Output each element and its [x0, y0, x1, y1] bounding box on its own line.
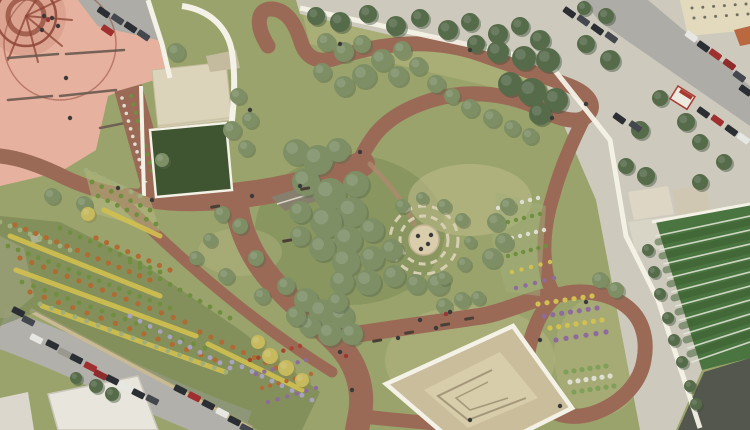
terrace-rows-green-item — [31, 284, 36, 289]
terrace-rows-sage-item — [165, 348, 170, 353]
terrace-rows-green-item — [203, 346, 208, 351]
terrace-rows-green-item — [147, 298, 152, 303]
terrace-rows-green-item — [125, 208, 130, 213]
people-accent-item — [444, 312, 448, 316]
terrace-rows-orange-item — [123, 297, 128, 302]
window-rows-item — [714, 15, 717, 18]
trees-park-item — [329, 141, 340, 152]
trees-park-item — [250, 252, 257, 259]
terrace-rows-sage-item — [154, 344, 159, 349]
aerial-park-render — [0, 0, 750, 430]
people-item — [358, 150, 362, 154]
east-terrace-green-item — [522, 216, 526, 220]
terrace-rows-orange-item — [170, 342, 175, 347]
window-rows-item — [747, 13, 750, 16]
terrace-rows-green-item — [148, 265, 153, 270]
trees-yellow-item — [297, 375, 303, 381]
trees-outside-item — [361, 7, 369, 15]
trees-outside-item — [522, 82, 535, 95]
trees-park-item — [439, 273, 445, 279]
people-item — [56, 24, 60, 28]
terrace-rows-sage-item — [38, 236, 43, 241]
terrace-rows-green-item — [105, 198, 110, 203]
east-terrace-purple-item — [552, 276, 556, 280]
terrace-rows-sage-item — [102, 176, 107, 181]
loop-bed-purple-item — [573, 334, 578, 339]
trees-park-item — [502, 200, 509, 207]
terrace-rows-green-item — [109, 189, 114, 194]
terrace-rows-sage-item — [96, 323, 101, 328]
loop-bed-yellow-item — [573, 321, 578, 326]
terrace-rows-green-item — [123, 317, 128, 322]
trees-park-item — [485, 111, 493, 119]
trees-park-item — [191, 253, 197, 259]
terrace-rows-orange-item — [93, 235, 98, 240]
terrace-rows-sage-item — [38, 302, 43, 307]
terrace-rows-green-item — [157, 302, 162, 307]
loop-bed-yellow-item — [556, 324, 561, 329]
terrace-rows-orange-item — [136, 254, 141, 259]
trees-park-item — [292, 204, 302, 214]
trees-park-item — [438, 300, 445, 307]
terrace-rows-lavender-item — [198, 350, 203, 355]
window-rows-item — [701, 6, 704, 9]
terrace-rows-lavender-item — [208, 355, 213, 360]
terrace-rows-orange-item — [54, 239, 59, 244]
trees-park-item — [293, 229, 302, 238]
terrace-rows-green-item — [16, 247, 21, 252]
terrace-rows-sage-item — [8, 224, 13, 229]
terrace-rows-sage-item — [107, 327, 112, 332]
terrace-rows-green-item — [46, 259, 51, 264]
terrace-rows-green-item — [36, 255, 41, 260]
window-rows-item — [725, 14, 728, 17]
people-item — [468, 418, 472, 422]
loop-bed-green-item — [611, 383, 616, 388]
people-item — [396, 336, 400, 340]
trees-park-item — [395, 43, 403, 51]
trees-outside-item — [532, 106, 542, 116]
ramp-plant-row-green-item — [131, 102, 135, 106]
people-accent-item — [46, 18, 50, 22]
loop-bed-green-item — [579, 388, 584, 393]
trees-park-item — [337, 79, 346, 88]
loop-bed-purple-item — [559, 311, 564, 316]
loop-bed-green-item — [579, 367, 584, 372]
loop-bed-purple-item — [550, 312, 555, 317]
loop-bed-purple-item — [541, 313, 546, 318]
terrace-rows-sage-item — [131, 336, 136, 341]
people-item — [419, 247, 423, 251]
terrace-rows-orange-item — [104, 240, 109, 245]
window-rows-item — [712, 5, 715, 8]
trees-park-item — [78, 198, 85, 205]
terrace-rows-sage-item — [48, 240, 53, 245]
flower-rows-purple-item — [266, 400, 270, 404]
trees-yellow-item — [280, 362, 287, 369]
ramp-plant-row-white-item — [137, 158, 141, 162]
window-rows-item — [734, 3, 737, 6]
terrace-rows-orange-item — [17, 255, 22, 260]
terrace-rows-orange-item — [127, 326, 132, 331]
people-accent-item — [344, 354, 348, 358]
loop-bed-yellow-item — [580, 295, 585, 300]
terrace-rows-green-item — [148, 208, 153, 213]
trees-outside-item — [644, 246, 649, 251]
flower-rows-purple-item — [314, 386, 318, 390]
terrace-rows-green-item — [118, 252, 123, 257]
trees-park-item — [279, 279, 287, 287]
terrace-rows-green-item — [148, 271, 153, 276]
people-item — [584, 102, 588, 106]
terrace-rows-green-item — [99, 184, 104, 189]
terrace-rows-green-item — [178, 288, 183, 293]
trees-park-item — [289, 309, 298, 318]
trees-outside-item — [692, 400, 697, 405]
terrace-rows-green-item — [127, 290, 132, 295]
east-terrace-green-item — [536, 246, 540, 250]
trees-park-item — [497, 235, 505, 243]
trees-outside-item — [670, 336, 675, 341]
terrace-rows-orange-item — [12, 222, 17, 227]
terrace-rows-green-item — [188, 293, 193, 298]
terrace-rows-green-item — [68, 230, 73, 235]
terrace-rows-lavender-item — [270, 379, 275, 384]
flower-rows-orange-item — [276, 381, 280, 385]
terrace-rows-orange-item — [99, 316, 104, 321]
trees-park-item — [344, 326, 354, 336]
trees-park-item — [307, 149, 321, 163]
ramp-plant-row-white-item — [129, 127, 133, 131]
trees-park-item — [473, 293, 479, 299]
flower-rows-purple-item — [254, 372, 258, 376]
terrace-rows-sage-item — [142, 340, 147, 345]
terrace-rows-sage-item — [84, 168, 89, 173]
terrace-rows-orange-item — [27, 289, 32, 294]
trees-outside-item — [463, 15, 471, 23]
loop-bed-green-item — [587, 366, 592, 371]
terrace-rows-green-item — [138, 261, 143, 266]
terrace-rows-orange-item — [115, 245, 120, 250]
terrace-rows-green-item — [98, 243, 103, 248]
loop-bed-yellow-item — [565, 323, 570, 328]
trees-outside-item — [413, 11, 421, 19]
trees-park-item — [429, 77, 437, 85]
ramp-plant-row-green-item — [129, 94, 133, 98]
people-item — [550, 116, 554, 120]
east-terrace-white-item — [526, 232, 530, 236]
terrace-rows-orange-item — [159, 310, 164, 315]
people-item — [584, 300, 588, 304]
building-white-bl-2 — [0, 392, 34, 430]
loop-bed-purple-item — [594, 305, 599, 310]
terrace-rows-orange-item — [29, 260, 34, 265]
terrace-rows-orange-item — [33, 231, 38, 236]
terrace-rows-lavender-item — [138, 319, 143, 324]
east-terrace-green-item — [530, 214, 534, 218]
terrace-rows-orange-item — [147, 277, 152, 282]
terrace-rows-orange-item — [53, 269, 58, 274]
flower-rows-purple-item — [304, 389, 308, 393]
loop-bed-purple-item — [553, 337, 558, 342]
east-terrace-white-item — [536, 196, 540, 200]
ramp-plant-row-white-item — [127, 119, 131, 123]
flower-rows-purple-item — [304, 358, 308, 362]
loop-bed-yellow-item — [599, 317, 604, 322]
terrace-rows-orange-item — [41, 265, 46, 270]
trees-outside-item — [107, 389, 113, 395]
trees-park-item — [220, 270, 227, 277]
trees-park-item — [391, 69, 400, 78]
trees-outside-item — [579, 37, 587, 45]
trees-park-item — [374, 52, 384, 62]
terrace-rows-sage-item — [119, 331, 124, 336]
people-item — [50, 16, 54, 20]
terrace-rows-orange-item — [230, 345, 235, 350]
people-item — [418, 318, 422, 322]
terrace-rows-sage-item — [18, 228, 23, 233]
people-item — [68, 116, 72, 120]
terrace-rows-orange-item — [141, 331, 146, 336]
trees-park-item — [46, 190, 53, 197]
east-terrace-green-item — [529, 248, 533, 252]
ramp-plant-row-white-item — [125, 112, 129, 116]
trees-park-item — [240, 142, 247, 149]
terrace-rows-green-item — [228, 316, 233, 321]
ramp-plant-row-green-item — [136, 119, 140, 123]
east-terrace-white-item — [542, 228, 546, 232]
terrace-rows-green-item — [158, 270, 163, 275]
terrace-rows-green-item — [154, 222, 159, 227]
loop-bed-yellow-item — [535, 301, 540, 306]
terrace-rows-lavender-item — [240, 364, 245, 369]
flower-rows-red-item — [298, 344, 302, 348]
flower-rows-orange-item — [309, 372, 313, 376]
ramp-plant-row-white-item — [133, 142, 137, 146]
terrace-rows-lavender-item — [310, 398, 315, 403]
terrace-rows-orange-item — [85, 252, 90, 257]
east-terrace-purple-item — [523, 283, 527, 287]
loop-bed-yellow-item — [553, 299, 558, 304]
people-item — [416, 234, 420, 238]
terrace-rows-sage-item — [72, 314, 77, 319]
loop-bed-green-item — [563, 369, 568, 374]
people-item — [250, 194, 254, 198]
trees-park-item — [386, 268, 396, 278]
trees-park-item — [331, 295, 340, 304]
terrace-rows-green-item — [111, 313, 116, 318]
flower-rows-purple-item — [275, 397, 279, 401]
trees-outside-item — [579, 3, 585, 9]
terrace-rows-green-item — [168, 306, 173, 311]
trees-outside-item — [639, 169, 647, 177]
trees-outside-item — [490, 44, 500, 54]
terrace-rows-green-item — [138, 203, 143, 208]
people-item — [116, 186, 120, 190]
terrace-rows-orange-item — [84, 310, 89, 315]
trees-park-item — [297, 291, 308, 302]
aerial-render-canvas — [0, 0, 750, 430]
terrace-rows-lavender-item — [158, 329, 163, 334]
trees-outside-item — [539, 51, 550, 62]
terrace-rows-green-item — [208, 304, 213, 309]
terrace-rows-orange-item — [56, 300, 61, 305]
ramp-plant-row-green-item — [145, 152, 149, 156]
trees-park-item — [312, 302, 324, 314]
people-item — [448, 310, 452, 314]
window-rows-item — [691, 7, 694, 10]
terrace-rows-green-item — [88, 239, 93, 244]
trees-park-item — [363, 221, 374, 232]
loop-bed-green-item — [571, 368, 576, 373]
terrace-rows-green-item — [138, 265, 143, 270]
terrace-rows-green-item — [58, 226, 63, 231]
east-terrace-green-item — [521, 250, 525, 254]
east-terrace-yellow-item — [548, 260, 552, 264]
east-terrace-yellow-item — [510, 270, 514, 274]
trees-outside-item — [72, 374, 77, 379]
terrace-rows-orange-item — [88, 283, 93, 288]
people-item — [150, 198, 154, 202]
trees-park-item — [234, 220, 241, 227]
people-item — [558, 404, 562, 408]
terrace-rows-green-item — [26, 251, 31, 256]
flower-rows-purple-item — [295, 391, 299, 395]
trees-yellow-item — [264, 350, 271, 357]
loop-bed-purple-item — [593, 331, 598, 336]
terrace-rows-green-item — [77, 300, 82, 305]
terrace-rows-green-item — [144, 217, 149, 222]
flower-rows-purple-item — [262, 369, 266, 373]
terrace-rows-orange-item — [182, 319, 187, 324]
trees-outside-item — [389, 19, 398, 28]
terrace-rows-sage-item — [28, 232, 33, 237]
terrace-rows-green-item — [191, 341, 196, 346]
terrace-rows-green-item — [198, 299, 203, 304]
loop-bed-yellow-item — [562, 297, 567, 302]
loop-bed-purple-item — [586, 307, 591, 312]
terrace-rows-green-item — [6, 244, 11, 249]
terrace-rows-sage-item — [138, 194, 143, 199]
terrace-rows-sage-item — [189, 357, 194, 362]
trees-park-item — [346, 174, 358, 186]
loop-bed-purple-item — [577, 308, 582, 313]
terrace-rows-lavender-item — [128, 314, 133, 319]
terrace-rows-lavender-item — [178, 340, 183, 345]
trees-park-item — [315, 65, 323, 73]
trees-outside-item — [718, 156, 725, 163]
terrace-rows-sage-item — [58, 244, 63, 249]
loop-bed-yellow-item — [571, 296, 576, 301]
terrace-rows-green-item — [78, 234, 83, 239]
east-terrace-white-item — [534, 230, 538, 234]
terrace-rows-orange-item — [116, 265, 121, 270]
trees-park-item — [446, 90, 453, 97]
terrace-rows-orange-item — [197, 329, 202, 334]
trees-outside-item — [441, 23, 450, 32]
trees-yellow-item — [253, 337, 259, 343]
trees-park-item — [157, 155, 163, 161]
trees-park-item — [459, 259, 465, 265]
trees-outside-item — [513, 19, 521, 27]
terrace-rows-orange-item — [241, 350, 246, 355]
loop-bed-green-item — [595, 386, 600, 391]
terrace-rows-sage-item — [93, 172, 98, 177]
terrace-rows-sage-item — [68, 248, 73, 253]
trees-outside-item — [491, 27, 500, 36]
trees-park-item — [286, 142, 298, 154]
loop-bed-yellow-item — [582, 320, 587, 325]
loop-bed-purple-item — [568, 309, 573, 314]
trees-park-item — [225, 123, 233, 131]
terrace-rows-green-item — [100, 308, 105, 313]
trees-park-item — [456, 294, 463, 301]
trees-outside-item — [600, 10, 607, 17]
terrace-rows-sage-item — [111, 181, 116, 186]
trees-outside-item — [679, 115, 687, 123]
trees-outside-item — [469, 37, 477, 45]
ramp-plant-row-green-item — [148, 161, 152, 165]
trees-park-item — [318, 182, 332, 196]
terrace-rows-sage-item — [224, 370, 229, 375]
terrace-rows-green-item — [90, 180, 95, 185]
loop-bed-white-item — [583, 377, 588, 382]
loop-bed-white-item — [591, 376, 596, 381]
trees-outside-item — [603, 53, 612, 62]
trees-park-item — [363, 249, 374, 260]
terrace-rows-green-item — [87, 275, 92, 280]
east-terrace-green-item — [514, 218, 518, 222]
terrace-rows-sage-item — [212, 365, 217, 370]
trees-outside-item — [678, 358, 683, 363]
trees-park-item — [169, 45, 177, 53]
east-terrace-white-item — [528, 198, 532, 202]
trees-park-item — [232, 90, 239, 97]
trees-park-item — [463, 101, 471, 109]
east-terrace-white-item — [496, 206, 500, 210]
trees-outside-item — [515, 49, 526, 60]
trees-outside-item — [686, 382, 691, 387]
trees-park-item — [506, 122, 513, 129]
east-terrace-yellow-item — [538, 262, 542, 266]
ramp-plant-row-green-item — [134, 111, 138, 115]
terrace-rows-lavender-item — [250, 369, 255, 374]
terrace-rows-orange-item — [44, 235, 49, 240]
east-terrace-white-item — [520, 200, 524, 204]
trees-park-item — [341, 201, 355, 215]
trees-park-item — [489, 215, 497, 223]
east-terrace-purple-item — [542, 278, 546, 282]
trees-park-item — [338, 230, 351, 243]
terrace-rows-green-item — [119, 194, 124, 199]
east-terrace-green-item — [513, 252, 517, 256]
terrace-rows-green-item — [218, 310, 223, 315]
terrace-rows-lavender-item — [188, 345, 193, 350]
terrace-rows-green-item — [158, 276, 163, 281]
terrace-rows-green-item — [20, 280, 25, 285]
terrace-rows-orange-item — [75, 248, 80, 253]
flower-rows-orange-item — [284, 379, 288, 383]
terrace-rows-green-item — [97, 278, 102, 283]
terrace-rows-sage-item — [129, 189, 134, 194]
loop-bed-purple-item — [603, 329, 608, 334]
trees-outside-item — [547, 91, 558, 102]
ramp-plant-row-white-item — [120, 96, 124, 100]
flower-rows-purple-item — [295, 360, 299, 364]
terrace-rows-sage-item — [120, 185, 125, 190]
terrace-rows-green-item — [137, 294, 142, 299]
terrace-rows-green-item — [76, 271, 81, 276]
